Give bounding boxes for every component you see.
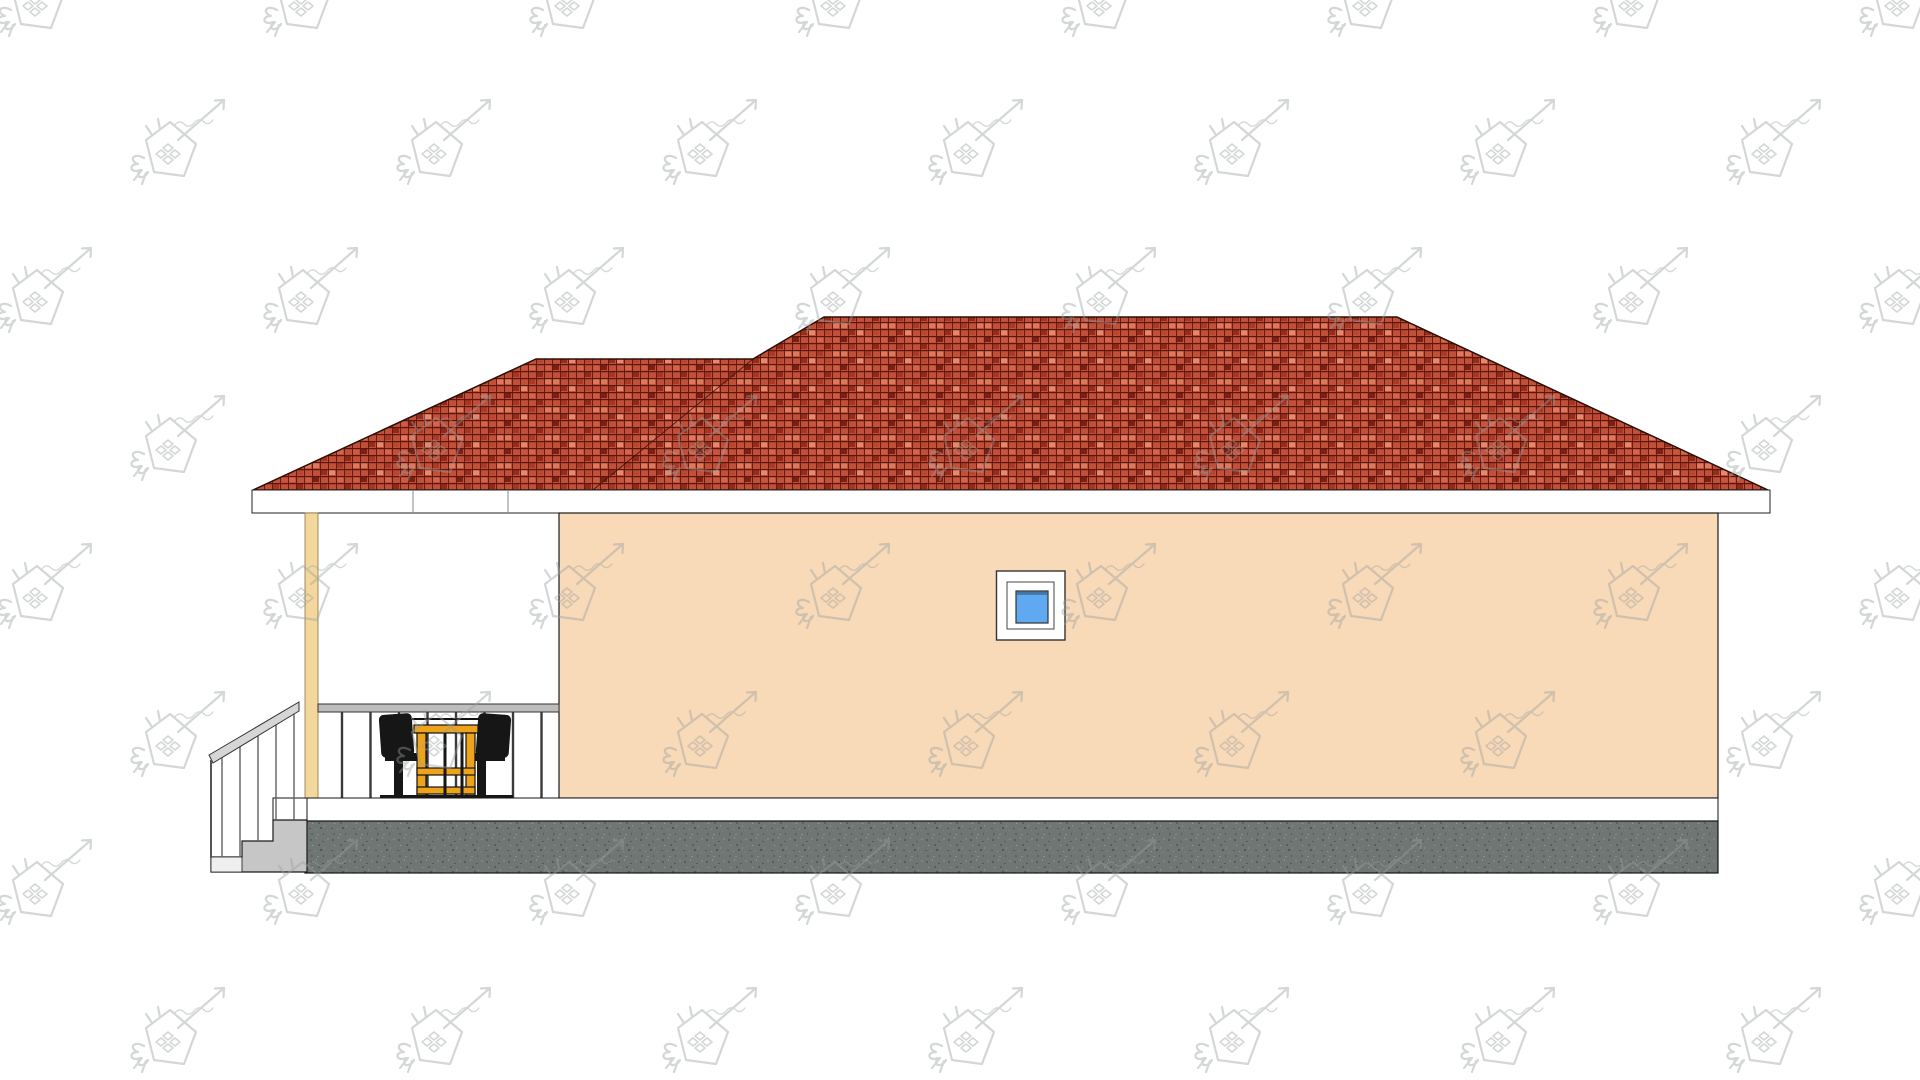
stair-rail: [209, 702, 299, 763]
watermark-logo: [1328, 0, 1421, 36]
watermark-logo: [663, 988, 756, 1072]
watermark-logo: [1594, 0, 1687, 36]
fascia-board: [252, 490, 1770, 513]
watermark-logo: [663, 100, 756, 184]
watermark-logo: [1727, 100, 1820, 184]
watermark-logo: [1195, 100, 1288, 184]
watermark-logo: [796, 0, 889, 36]
watermark-logo: [131, 988, 224, 1072]
watermark-logo: [1727, 988, 1820, 1072]
window-glass: [1016, 591, 1048, 623]
watermark-logo: [0, 0, 91, 36]
porch-rail: [318, 704, 559, 712]
watermark-logo: [1195, 988, 1288, 1072]
window: [997, 571, 1066, 640]
watermark-logo: [1860, 248, 1920, 332]
watermark-logo: [0, 248, 91, 332]
watermark-logo: [264, 248, 357, 332]
watermark-logo: [929, 988, 1022, 1072]
porch-floor-band: [305, 798, 1718, 821]
watermark-logo: [1860, 544, 1920, 628]
watermark-logo: [1860, 0, 1920, 36]
porch-post: [305, 513, 318, 798]
elevation-drawing-canvas: [0, 0, 1920, 1080]
watermark-logo: [0, 544, 91, 628]
watermark-logo: [530, 248, 623, 332]
watermark-logo: [1461, 100, 1554, 184]
watermark-logo: [1062, 0, 1155, 36]
watermark-logo: [264, 0, 357, 36]
watermark-logo: [397, 988, 490, 1072]
watermark-logo: [1461, 988, 1554, 1072]
watermark-logo: [1860, 840, 1920, 924]
watermark-logo: [0, 840, 91, 924]
stair-bottom-step-face: [211, 857, 242, 872]
watermark-logo: [530, 0, 623, 36]
watermark-logo: [1594, 248, 1687, 332]
stairs: [209, 702, 307, 872]
watermark-logo: [1727, 692, 1820, 776]
watermark-logo: [131, 396, 224, 480]
foundation: [305, 821, 1718, 873]
watermark-logo: [929, 100, 1022, 184]
window-glass-shadow: [1017, 592, 1047, 595]
watermark-logo: [1727, 396, 1820, 480]
watermark-logo: [131, 100, 224, 184]
watermark-logo: [397, 100, 490, 184]
stair-landing-face: [273, 798, 307, 821]
elevation-svg: [0, 0, 1920, 1080]
wall: [559, 513, 1718, 798]
house-drawing: [209, 317, 1770, 873]
